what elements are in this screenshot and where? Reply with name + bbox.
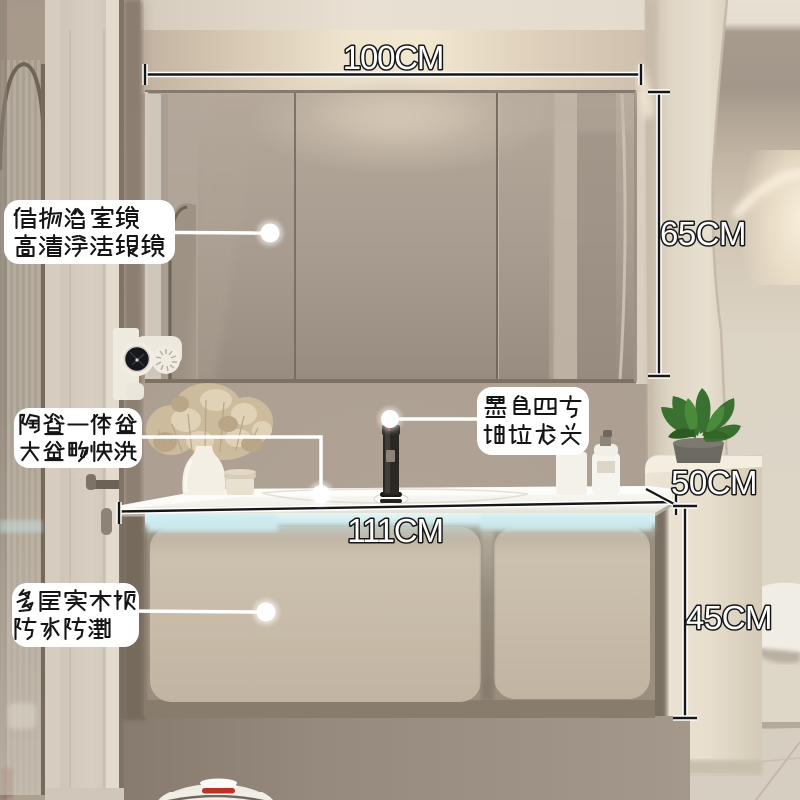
svg-text:100CM: 100CM (343, 39, 443, 76)
svg-text:50CM: 50CM (671, 464, 757, 501)
svg-text:65CM: 65CM (660, 215, 746, 252)
svg-text:45CM: 45CM (686, 599, 772, 636)
svg-text:111CM: 111CM (347, 512, 442, 549)
